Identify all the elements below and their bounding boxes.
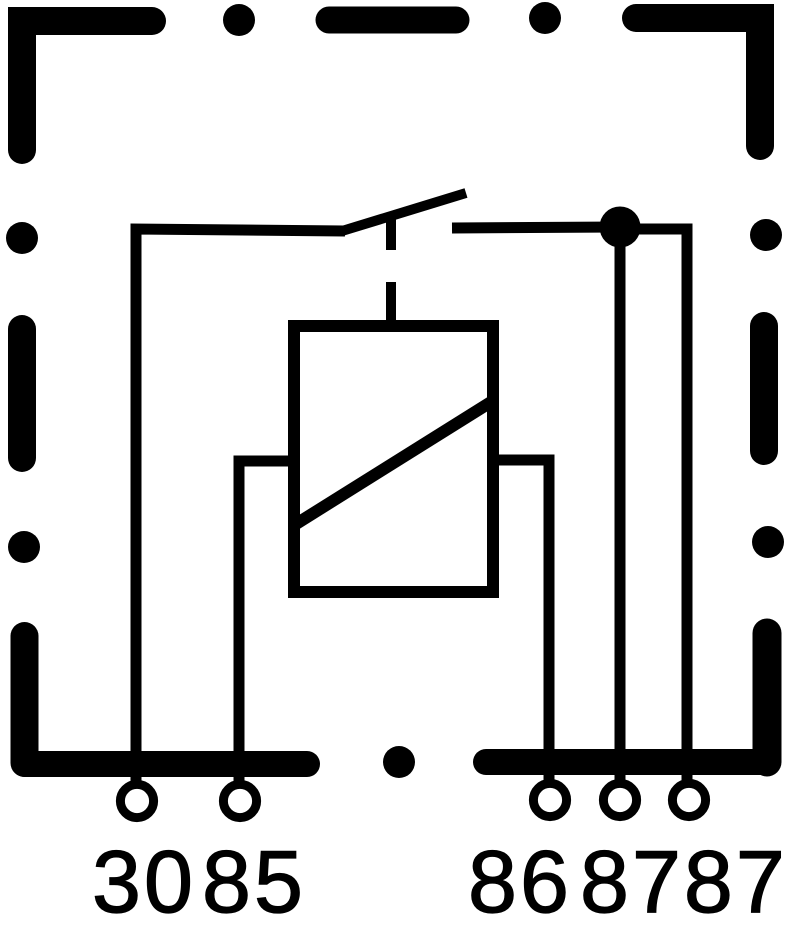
svg-text:86: 86 — [468, 832, 572, 929]
svg-text:8787: 8787 — [580, 832, 788, 929]
svg-text:30: 30 — [92, 832, 196, 929]
svg-text:85: 85 — [202, 832, 306, 929]
